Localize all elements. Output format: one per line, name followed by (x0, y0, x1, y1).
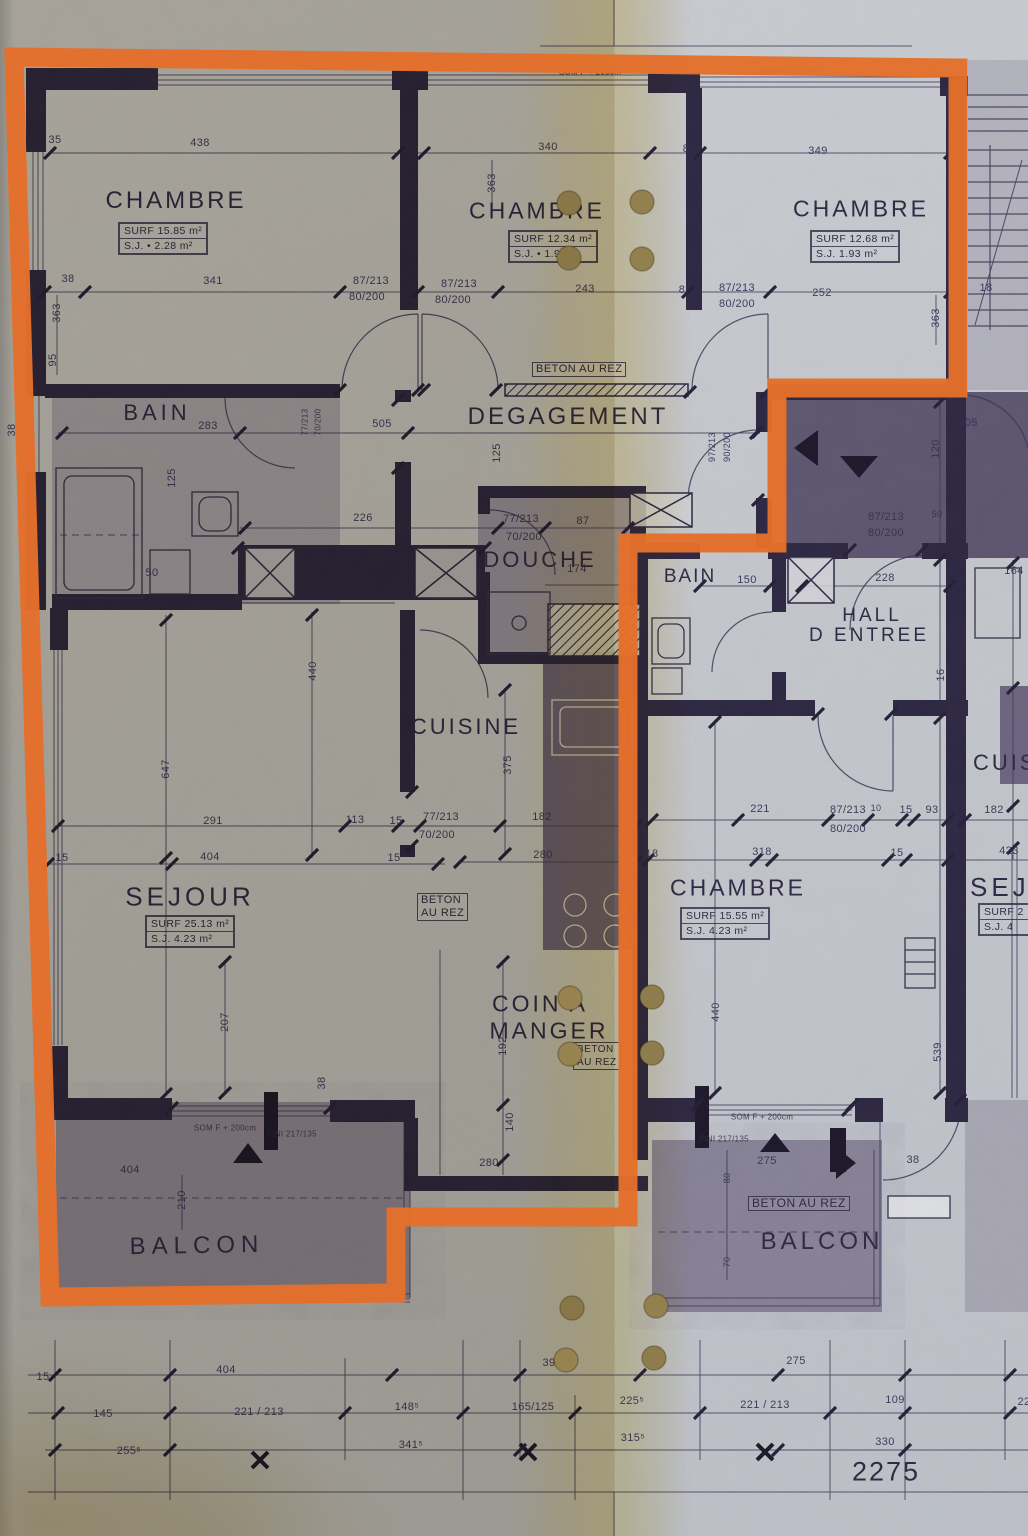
scan-overlay (0, 0, 1028, 1536)
punch-holes (554, 190, 668, 1372)
apartment-highlight-outline (14, 57, 958, 1297)
floorplan-scan: CHAMBRE SURF 15.85 m² S.J. • 2.28 m² CHA… (0, 0, 1028, 1536)
